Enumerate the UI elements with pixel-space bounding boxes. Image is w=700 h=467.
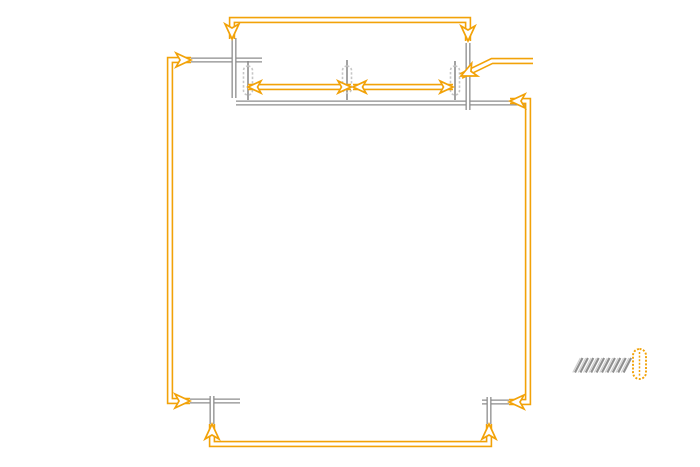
tool-position-3 <box>451 61 460 100</box>
legend-tool-capsule <box>633 349 646 379</box>
toolpath-right-bar <box>509 94 528 409</box>
stepover-arrow-left <box>248 81 351 93</box>
material-hatching <box>573 358 631 373</box>
tool-position-2 <box>343 60 352 100</box>
toolpath-left-bar <box>170 53 191 408</box>
toolpath-diagram <box>0 0 700 467</box>
diagram-canvas <box>0 0 700 467</box>
toolpath-top-bar <box>225 20 475 41</box>
toolpath-bottom-bar <box>205 424 496 444</box>
tool-position-1 <box>244 61 253 100</box>
stepover-arrow-right <box>353 81 453 93</box>
